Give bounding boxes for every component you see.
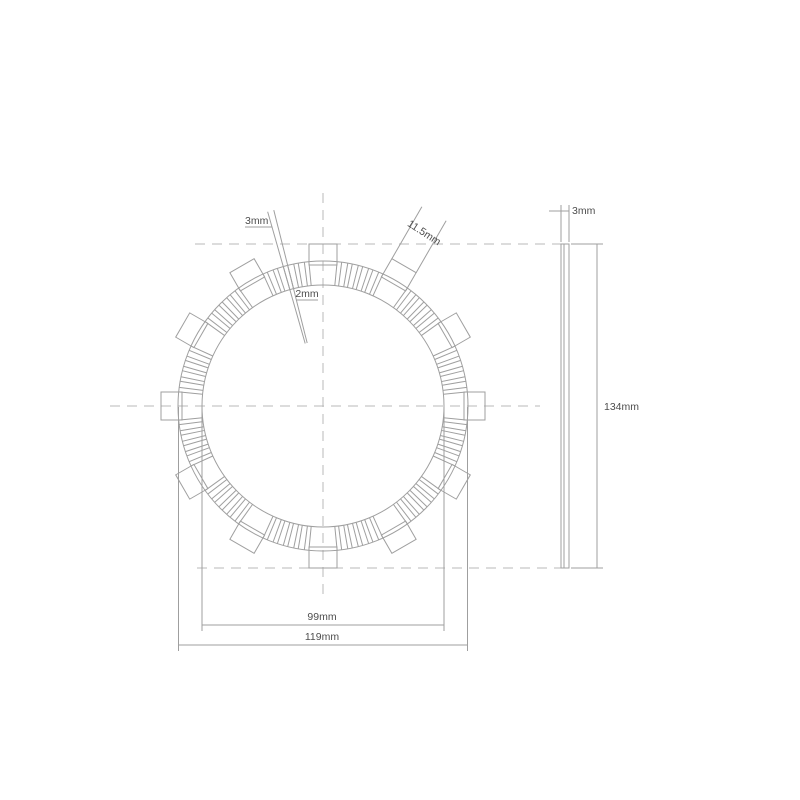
technical-drawing-page: 3mm2mm11.5mm99mm119mm3mm134mm xyxy=(0,0,800,800)
inner-diameter-label: 99mm xyxy=(307,611,336,623)
drive-tab xyxy=(230,259,265,291)
overall-diameter-label: 134mm xyxy=(604,401,639,413)
groove-width-outer-label: 3mm xyxy=(245,215,269,227)
drive-tab xyxy=(438,313,470,348)
groove-extension-line-right xyxy=(274,210,307,343)
centerlines xyxy=(110,193,561,600)
groove-width-inner-label: 2mm xyxy=(295,288,319,300)
groove-extension-line-left xyxy=(268,212,306,344)
clutch-plate-drawing: 3mm2mm11.5mm99mm119mm3mm134mm xyxy=(0,0,800,800)
drive-tab xyxy=(381,259,416,291)
groove-width-dimensions: 3mm2mm xyxy=(245,210,319,343)
side-view-plate: 3mm134mm xyxy=(549,205,639,568)
drive-tab xyxy=(438,464,470,499)
drive-tab xyxy=(176,464,208,499)
drive-tab xyxy=(381,521,416,553)
plate-edge-outline xyxy=(561,244,569,568)
tab-width-dimension: 11.5mm xyxy=(392,207,446,273)
thickness-label: 3mm xyxy=(572,205,596,217)
outer-diameter-label: 119mm xyxy=(305,631,339,643)
drive-tab xyxy=(230,521,265,553)
drive-tab xyxy=(176,313,208,348)
